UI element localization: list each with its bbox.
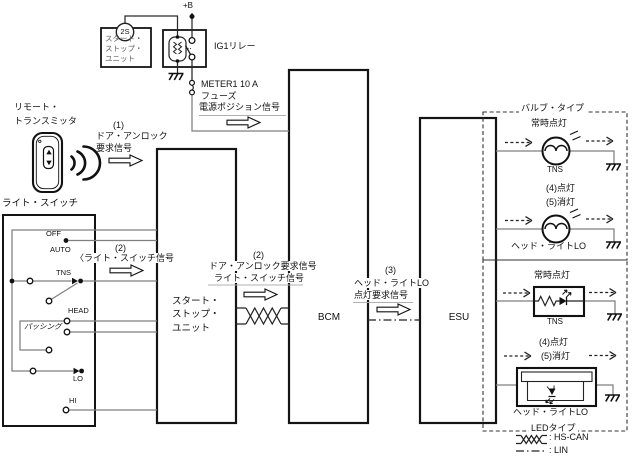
ig1-relay-symbol — [169, 14, 195, 63]
power-position-signal-label: 電源ポジション信号 — [199, 102, 280, 112]
arrow-can-signals — [244, 289, 277, 300]
led-tns-icon — [534, 287, 584, 316]
dashed-arrow-led-head-out — [589, 352, 616, 360]
bulb-head-label: ヘッド・ライトLO — [511, 241, 586, 251]
bulb-tns-label: TNS — [547, 165, 563, 174]
bulb-tns-note: 常時点灯 — [531, 118, 567, 128]
position-tns: TNS — [56, 269, 71, 278]
arrow-door-unlock — [109, 155, 142, 166]
dashed-arrow-led-tns-out — [589, 289, 616, 297]
legend-hs-can-symbol — [516, 436, 547, 444]
fuse-name-label: METER1 10 A — [201, 79, 258, 89]
led-head-note-1: (4)点灯 — [539, 337, 568, 347]
position-hi: HI — [69, 397, 77, 406]
door-unlock-label-1: ドア・アンロック — [96, 131, 168, 141]
dashed-arrow-bulb-head-out — [586, 215, 613, 223]
head-lo-bulb-icon — [543, 209, 581, 243]
tns-bulb-icon — [543, 131, 581, 165]
legend-hs-can-label: : HS-CAN — [549, 432, 589, 442]
wiring-diagram: +B 2S スタート・ ストップ・ ユニット IG1リレー METER1 10 … — [0, 0, 632, 476]
lin-signal-2-label: 点灯要求信号 — [352, 290, 410, 300]
bcm-label: BCM — [311, 312, 347, 324]
bcm-box — [289, 70, 368, 423]
relay-contact-bottom — [189, 54, 195, 60]
position-auto: AUTO — [50, 246, 71, 255]
ground-led-tns — [607, 314, 622, 321]
remote-label-2: トランスミッタ — [14, 116, 77, 126]
led-tns-label: TNS — [547, 317, 563, 326]
esu-label: ESU — [443, 312, 475, 324]
battery-junction-dot — [190, 14, 195, 19]
led-tns-note: 常時点灯 — [534, 270, 570, 280]
ground-bulb-head — [606, 242, 621, 249]
remote-label-1: リモート・ — [14, 102, 59, 112]
unit-ref-label: スタート・ ストップ・ ユニット — [105, 34, 143, 63]
led-head-label: ヘッド・ライトLO — [513, 407, 588, 417]
dashed-arrow-led-head-in — [504, 352, 531, 360]
fuse-word-label: フューズ — [201, 91, 237, 101]
arrow-lin-signal — [377, 304, 410, 315]
ground-bulb-tns — [606, 164, 621, 171]
arrow-power-position — [227, 117, 260, 128]
start-stop-unit-label: スタート・ ストップ・ ユニット — [172, 295, 220, 335]
hs-can-twisted-pair — [236, 308, 289, 324]
door-unlock-label-2: 要求信号 — [96, 143, 132, 153]
can-signal-1-label: ドア・アンロック要求信号 — [207, 261, 319, 271]
bulb-head-note-1: (4)点灯 — [546, 183, 575, 193]
diagram-graphics — [0, 0, 632, 476]
bulb-type-title: バルブ・タイプ — [519, 103, 586, 113]
relay-label: IG1リレー — [214, 41, 256, 51]
dashed-arrow-bulb-head-in — [505, 217, 532, 225]
dashed-arrow-led-tns-in — [503, 289, 530, 297]
battery-label: +B — [183, 1, 193, 10]
dashed-arrow-bulb-tns-in — [505, 139, 532, 147]
start-stop-unit-box — [157, 149, 236, 423]
key-fob-icon — [33, 133, 62, 192]
led-head-note-2: (5)消灯 — [539, 351, 572, 361]
position-off: OFF — [46, 230, 61, 239]
light-switch-title: ライト・スイッチ — [2, 199, 78, 210]
legend-lin-label: : LIN — [549, 445, 568, 455]
relay-contact-top — [189, 38, 195, 44]
arrow-light-switch-signal — [110, 265, 143, 276]
position-lo: LO — [73, 375, 83, 384]
step2-can-label: (2) — [253, 250, 264, 260]
step1-label: (1) — [113, 120, 124, 130]
bulb-head-note-2: (5)消灯 — [546, 197, 575, 207]
step3-label: (3) — [385, 265, 396, 275]
led-headlight-icon — [517, 368, 596, 406]
dashed-arrow-bulb-tns-out — [586, 137, 613, 145]
lin-signal-1-label: ヘッド・ライトLO — [352, 278, 431, 288]
esu-box — [420, 118, 496, 423]
ground-relay — [169, 74, 184, 81]
position-passing: パッシング — [24, 323, 62, 332]
light-switch-signal-label: 〈ライト・スイッチ信号 — [73, 253, 176, 263]
ground-led-head — [605, 395, 620, 402]
can-signal-2-label: ライト・スイッチ信号 — [212, 273, 306, 283]
position-head: HEAD — [68, 307, 89, 316]
